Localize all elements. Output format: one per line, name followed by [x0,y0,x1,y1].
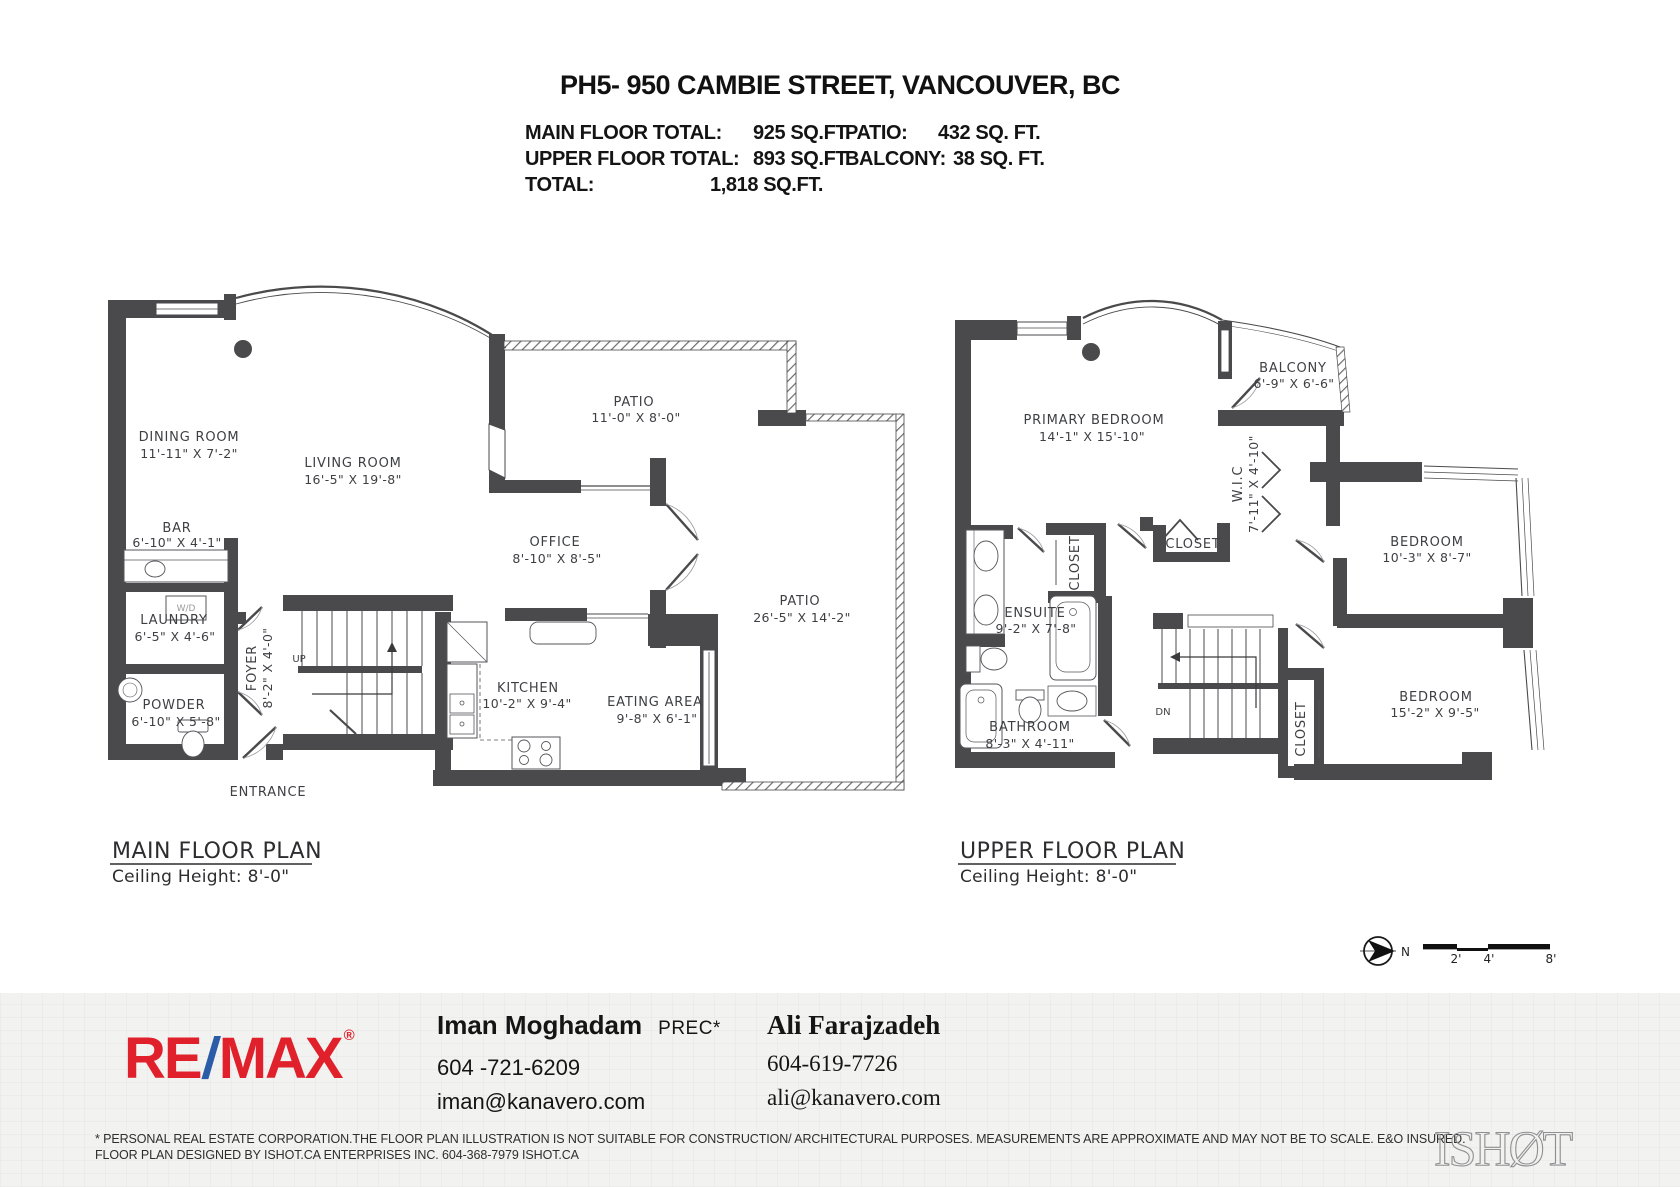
bathroom-label: BATHROOM [989,720,1071,735]
agent1-name-row: Iman MoghadamPREC* [437,1010,721,1044]
ishot-logo-text: ISHØT [1434,1120,1573,1176]
bar-label: BAR [162,521,191,536]
upper-balcony-hatch [1336,347,1350,412]
scale-bar: 2' 4' 8' [1423,944,1556,966]
main-total-label: MAIN FLOOR TOTAL: [525,122,722,145]
wd-label: W/D [177,604,196,614]
closet-primary-label: CLOSET [1165,537,1220,552]
laundry-dims: 6'-5" X 4'-6" [135,629,216,644]
foyer-label: FOYER [245,645,260,691]
ensuite-dims: 9'-2" X 7'-8" [996,621,1077,636]
upper-plan-title: UPPER FLOOR PLAN Ceiling Height: 8'-0" [958,839,1185,887]
agent-card-2: Ali Farajzadeh 604-619-7726 ali@kanavero… [767,1010,941,1111]
eating-label: EATING AREA [607,695,703,710]
office-label: OFFICE [529,535,580,550]
bedroom1-dims: 10'-3" X 8'-7" [1382,550,1471,565]
up-label: UP [292,654,305,665]
kitchen-dims: 10'-2" X 9'-4" [482,696,571,711]
agent1-email: iman@kanavero.com [437,1089,721,1115]
living-dims: 16'-5" X 19'-8" [304,472,402,487]
page-title: PH5- 950 CAMBIE STREET, VANCOUVER, BC [0,70,1680,101]
primary-bedroom-dims: 14'-1" X 15'-10" [1039,429,1145,444]
kitchen-label: KITCHEN [497,681,559,696]
scale-tick-8: 8' [1546,952,1557,966]
upper-plan-title-text: UPPER FLOOR PLAN [960,839,1185,864]
powder-dims: 6'-10" X 5'-8" [131,714,220,729]
upper-floor-plan: PRIMARY BEDROOM 14'-1" X 15'-10" BALCONY… [955,301,1544,887]
registered-mark: ® [344,1027,353,1044]
footer: RE/MAX® Iman MoghadamPREC* 604 -721-6209… [0,993,1680,1187]
agent1-name: Iman Moghadam [437,1010,642,1040]
agent2-email: ali@kanavero.com [767,1085,941,1111]
powder-label: POWDER [143,698,206,713]
upper-glass-curve [1083,301,1340,351]
remax-logo: RE/MAX® [124,1025,351,1092]
dining-label: DINING ROOM [139,430,240,445]
main-plan-title: MAIN FLOOR PLAN Ceiling Height: 8'-0" [110,839,322,887]
patio-total-label: PATIO: [845,122,907,145]
north-label: N [1401,945,1410,959]
living-label: LIVING ROOM [304,456,401,471]
main-plan-ceiling-text: Ceiling Height: 8'-0" [112,867,289,887]
dining-dims: 11'-11" X 7'-2" [140,446,238,461]
scale-tick-2: 2' [1451,952,1462,966]
bedroom2-label: BEDROOM [1399,690,1472,705]
balcony-dims: 6'-9" X 6'-6" [1254,376,1335,391]
balcony-total-value: 38 SQ. FT. [953,148,1045,171]
patio-right-dims: 26'-5" X 14'-2" [753,610,851,625]
closet-hall-label: CLOSET [1294,701,1309,756]
ishot-logo: ISHØT [1430,1118,1620,1178]
upper-total-value: 893 SQ.FT. [753,148,850,171]
agent2-phone: 604-619-7726 [767,1051,941,1077]
patio-right-label: PATIO [780,594,821,609]
grand-total-value: 1,818 SQ.FT. [710,174,823,197]
patio-top-label: PATIO [614,395,655,410]
main-floor-plan: DINING ROOM 11'-11" X 7'-2" LIVING ROOM … [108,287,904,887]
dn-label: DN [1155,707,1170,718]
patio-top-dims: 11'-0" X 8'-0" [591,410,680,425]
bedroom2-dims: 15'-2" X 9'-5" [1390,705,1479,720]
scale-tick-4: 4' [1484,952,1495,966]
agent1-designation: PREC* [658,1018,721,1039]
entrance-label: ENTRANCE [230,785,307,800]
ensuite-label: ENSUITE [1004,606,1065,621]
agent-card-1: Iman MoghadamPREC* 604 -721-6209 iman@ka… [437,1010,721,1115]
balcony-label: BALCONY [1259,361,1327,376]
disclaimer-line-1: * PERSONAL REAL ESTATE CORPORATION.THE F… [95,1131,1365,1147]
eating-dims: 9'-8" X 6'-1" [617,711,698,726]
main-total-value: 925 SQ.FT. [753,122,850,145]
compass: N [1360,937,1410,965]
agent1-phone: 604 -721-6209 [437,1055,721,1081]
remax-max: MAX [219,1026,342,1091]
closet-ensuite-label: CLOSET [1068,535,1083,590]
grand-total-label: TOTAL: [525,174,594,197]
main-glass-curve [236,287,506,348]
wic-label: W.I.C [1231,466,1246,503]
upper-total-label: UPPER FLOOR TOTAL: [525,148,739,171]
primary-bedroom-label: PRIMARY BEDROOM [1024,413,1165,428]
bedroom1-label: BEDROOM [1390,535,1463,550]
wic-dims: 7'-11" X 4'-10" [1246,435,1261,533]
main-plan-title-text: MAIN FLOOR PLAN [112,839,322,864]
disclaimer-line-2: FLOOR PLAN DESIGNED BY ISHOT.CA ENTERPRI… [95,1147,1365,1163]
balcony-total-label: BALCONY: [845,148,946,171]
office-dims: 8'-10" X 8'-5" [512,551,601,566]
remax-re: RE [124,1026,201,1091]
agent2-name: Ali Farajzadeh [767,1010,941,1040]
bar-dims: 6'-10" X 4'-1" [132,535,221,550]
foyer-dims: 8'-2" X 4'-0" [260,628,275,709]
patio-total-value: 432 SQ. FT. [938,122,1040,145]
floorplan-sheet: DINING ROOM 11'-11" X 7'-2" LIVING ROOM … [0,0,1680,1187]
bathroom-dims: 8'-3" X 4'-11" [985,736,1074,751]
disclaimer: * PERSONAL REAL ESTATE CORPORATION.THE F… [95,1131,1365,1163]
upper-plan-ceiling-text: Ceiling Height: 8'-0" [960,867,1137,887]
laundry-label: LAUNDRY [140,613,207,628]
